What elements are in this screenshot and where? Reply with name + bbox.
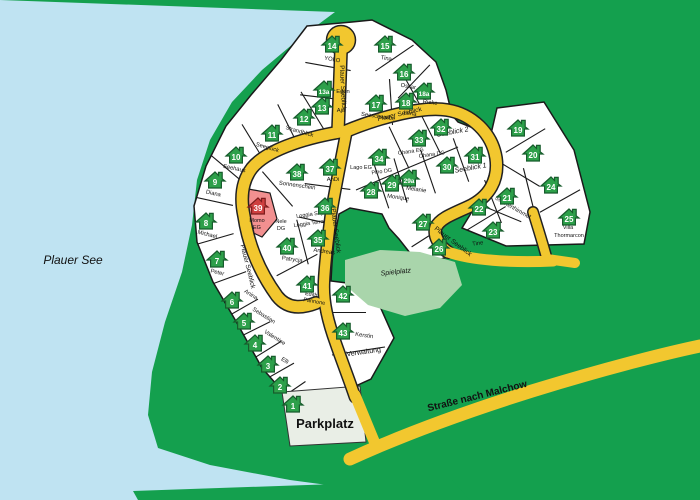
house-number: 32	[437, 125, 446, 134]
house-number: 28	[367, 188, 376, 197]
house-number: 13a	[319, 89, 330, 96]
house-number: 5	[242, 319, 247, 328]
house-number: 7	[215, 257, 220, 266]
house-number: 13	[318, 104, 327, 113]
plot-label: Nele	[275, 219, 286, 225]
plot-label: EG	[253, 225, 261, 231]
plot-label: Momo	[249, 218, 264, 224]
house-number: 12	[300, 115, 309, 124]
house-number: 9	[213, 178, 218, 187]
house-number: 39	[254, 204, 263, 213]
plot-label: Villa	[563, 225, 574, 231]
house-number: 25	[565, 215, 574, 224]
house-number: 40	[283, 244, 292, 253]
site-map: Plauer SeeblickPlauer SeeblickPlauer See…	[0, 0, 700, 500]
house-number: 8	[204, 219, 209, 228]
house-number: 29	[388, 181, 397, 190]
house-number: 43	[339, 329, 348, 338]
house-number: 18	[402, 99, 411, 108]
house-number: 23	[489, 228, 498, 237]
house-number: 19	[514, 126, 523, 135]
house-number: 27	[419, 220, 428, 229]
house-number: 37	[326, 165, 335, 174]
house-number: 6	[230, 298, 235, 307]
house-number: 29a	[404, 178, 415, 185]
area-label-lake: Plauer See	[43, 253, 103, 267]
house-number: 33	[415, 136, 424, 145]
house-number: 4	[253, 341, 258, 350]
house-number: 36	[321, 204, 330, 213]
map-canvas: Plauer SeeblickPlauer SeeblickPlauer See…	[0, 0, 700, 500]
house-number: 17	[372, 101, 381, 110]
plot-label: DG	[277, 226, 285, 232]
house-number: 31	[471, 153, 480, 162]
house-number: 14	[328, 42, 337, 51]
house-number: 30	[443, 163, 452, 172]
house-number: 26	[435, 245, 444, 254]
house-number: 15	[381, 42, 390, 51]
house-name-label: Egon	[336, 89, 350, 95]
house-number: 24	[547, 183, 556, 192]
house-number: 10	[232, 153, 241, 162]
road-east-stub	[547, 259, 575, 263]
house-number: 34	[375, 155, 384, 164]
plot-label: Thormarcon	[554, 233, 584, 239]
house-number: 1	[291, 402, 296, 411]
house-number: 38	[293, 170, 302, 179]
house-number: 42	[339, 292, 348, 301]
house-number: 22	[475, 205, 484, 214]
house-number: 20	[529, 151, 538, 160]
house-number: 21	[503, 194, 512, 203]
area-label-parking: Parkplatz	[296, 416, 354, 431]
house-number: 3	[266, 362, 271, 371]
house-number: 2	[278, 383, 283, 392]
house-number: 41	[303, 282, 312, 291]
plot-label: Lago EG	[350, 165, 372, 171]
house-name-label: Aja	[337, 108, 346, 114]
house-number: 35	[314, 236, 323, 245]
house-name-label: AnDi	[327, 177, 340, 183]
house-number: 16	[400, 70, 409, 79]
house-number: 11	[268, 131, 277, 140]
house-number: 18a	[419, 91, 430, 98]
